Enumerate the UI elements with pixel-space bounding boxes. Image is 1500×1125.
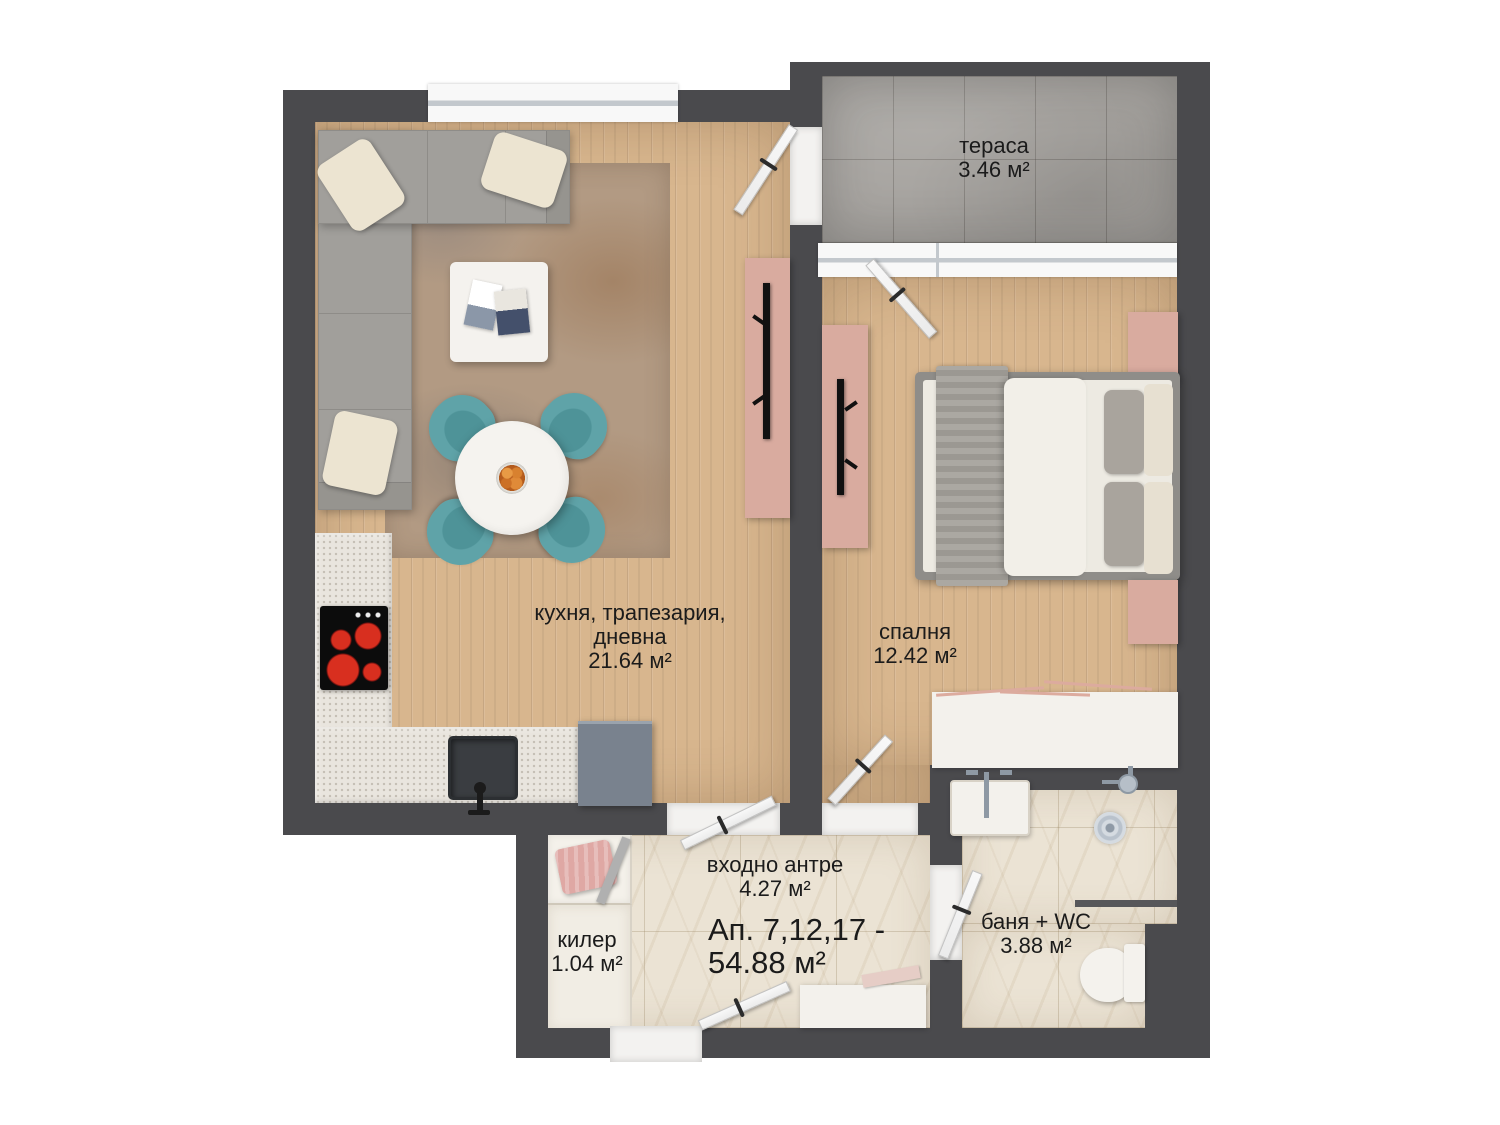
room-label-terrace: тераса 3.46 м² <box>958 134 1029 182</box>
wall-living-left <box>283 90 315 805</box>
entrance-doormat <box>610 1026 702 1062</box>
room-label-bedroom: спалня 12.42 м² <box>873 620 957 668</box>
room-area: 3.46 м² <box>958 158 1029 182</box>
room-area: 1.04 м² <box>551 952 622 976</box>
bed-throw-blanket <box>936 366 1008 586</box>
room-name: тераса <box>958 134 1029 158</box>
tv-stand-bedroom <box>822 325 868 548</box>
wardrobe <box>932 692 1178 768</box>
nightstand-bottom <box>1128 580 1178 644</box>
door-handle <box>854 758 872 774</box>
kitchen-faucet-stem <box>477 792 483 812</box>
room-area: 21.64 м² <box>534 649 725 673</box>
living-room-window <box>428 84 678 122</box>
terrace-door-opening <box>790 127 822 225</box>
sink-faucet-handle <box>1000 770 1012 775</box>
tv-bedroom <box>837 379 844 495</box>
sink-faucet-stem <box>984 772 989 818</box>
room-area: 3.88 м² <box>981 934 1091 958</box>
room-name: кухня, трапезария, <box>534 601 725 625</box>
shower-head <box>1118 774 1138 794</box>
refrigerator <box>578 721 652 806</box>
room-label-hall: входно антре 4.27 м² <box>707 853 843 901</box>
bed-pillow-gray <box>1104 390 1144 474</box>
room-name: входно антре <box>707 853 843 877</box>
tv-living <box>763 283 770 439</box>
apartment-total-area: 54.88 м² <box>708 946 885 979</box>
room-name: килер <box>551 928 622 952</box>
wall-right-upper <box>1177 62 1210 924</box>
sink-faucet-handle <box>966 770 978 775</box>
room-label-closet: килер 1.04 м² <box>551 928 622 976</box>
bed-pillow-cream <box>1144 384 1173 476</box>
room-label-bathroom: баня + WC 3.88 м² <box>981 910 1091 958</box>
bedroom-hall-threshold <box>822 803 918 835</box>
shower-drain <box>1094 812 1126 844</box>
sofa-seam <box>319 313 411 314</box>
bed-pillow-cream <box>1144 482 1173 574</box>
bathroom-sink <box>950 780 1030 836</box>
room-area: 4.27 м² <box>707 877 843 901</box>
door-handle <box>759 157 778 171</box>
sofa-seam <box>319 409 411 410</box>
cooktop <box>320 606 388 690</box>
door-handle <box>888 287 906 303</box>
room-name: дневна <box>534 625 725 649</box>
magazine <box>494 288 530 335</box>
room-area: 12.42 м² <box>873 644 957 668</box>
wall-hall-left <box>516 803 548 1058</box>
wall-right-lower-step <box>1145 924 1210 1028</box>
sofa-seam <box>427 131 428 223</box>
fruit-bowl <box>496 462 528 494</box>
kitchen-counter-horizontal <box>315 727 578 803</box>
entry-bench <box>800 985 926 1028</box>
kitchen-faucet-handle <box>468 810 490 815</box>
toilet-tank <box>1124 944 1145 1002</box>
bed-duvet <box>1004 378 1086 576</box>
apartment-label: Ап. 7,12,17 - 54.88 м² <box>708 913 885 979</box>
room-name: баня + WC <box>981 910 1091 934</box>
nightstand-top <box>1128 312 1178 380</box>
wall-terrace-parapet <box>790 62 1210 76</box>
shower-partition <box>1075 900 1177 907</box>
room-label-living: кухня, трапезария, дневна 21.64 м² <box>534 601 725 673</box>
room-name: спалня <box>873 620 957 644</box>
window-frame-divider <box>936 243 939 277</box>
floor-plan: тераса 3.46 м² кухня, трапезария, дневна… <box>0 0 1500 1125</box>
apartment-number: Ап. 7,12,17 - <box>708 913 885 946</box>
bed-pillow-gray <box>1104 482 1144 566</box>
